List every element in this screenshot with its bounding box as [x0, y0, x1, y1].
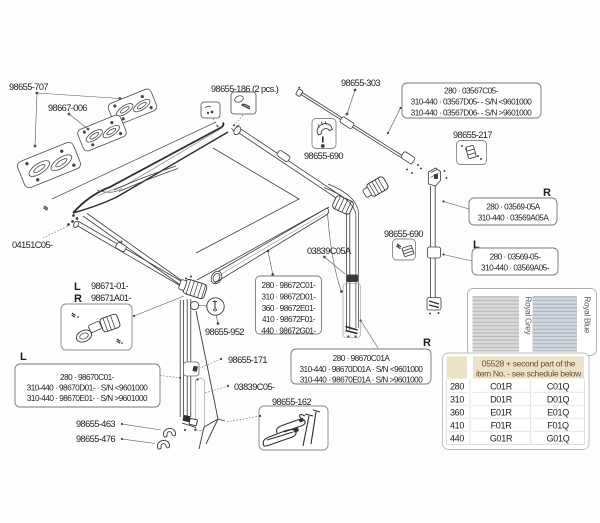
svg-text:310-440 · 03567D05- - S/N <960: 310-440 · 03567D05- - S/N <9601000 [411, 98, 533, 107]
svg-text:310-440 · 98670D01A · S/N <960: 310-440 · 98670D01A · S/N <9601000 [300, 365, 424, 374]
svg-text:280 · 03569-05A: 280 · 03569-05A [486, 203, 541, 212]
svg-text:G01R: G01R [490, 434, 513, 444]
svg-text:item No. - see schedule below: item No. - see schedule below [476, 369, 582, 379]
svg-text:Royal Blue: Royal Blue [583, 297, 592, 334]
svg-text:98655-476: 98655-476 [76, 434, 115, 444]
svg-text:F01R: F01R [491, 421, 513, 431]
svg-text:280 · 03567C05-: 280 · 03567C05- [444, 87, 499, 96]
svg-text:98655-690: 98655-690 [304, 151, 343, 161]
svg-text:98655-162: 98655-162 [272, 397, 311, 407]
svg-text:310-440 · 03569A05A: 310-440 · 03569A05A [478, 214, 550, 223]
svg-text:280 · 03569-05-: 280 · 03569-05- [490, 253, 542, 262]
svg-text:310-440 · 98670E01A · S/N >960: 310-440 · 98670E01A · S/N >9601000 [300, 376, 423, 385]
svg-text:310-440 · 03567D06- - S/N >960: 310-440 · 03567D06- - S/N >9601000 [411, 109, 533, 118]
svg-text:98655-217: 98655-217 [453, 130, 492, 140]
svg-text:310: 310 [450, 395, 464, 405]
svg-text:310 · 98672D01-: 310 · 98672D01- [262, 292, 317, 301]
svg-text:310-440 · 98670E01- · S/N >960: 310-440 · 98670E01- · S/N >9601000 [27, 394, 148, 403]
svg-text:D01Q: D01Q [547, 395, 570, 405]
svg-text:98655-690: 98655-690 [384, 229, 423, 239]
svg-text:G01Q: G01Q [547, 434, 570, 444]
svg-text:98655-463: 98655-463 [76, 419, 115, 429]
svg-text:410 · 98672F01-: 410 · 98672F01- [262, 315, 316, 324]
svg-text:360: 360 [450, 408, 464, 418]
svg-text:98655-303: 98655-303 [341, 78, 380, 88]
svg-text:98655-707: 98655-707 [9, 82, 48, 92]
svg-text:98655-171: 98655-171 [228, 355, 267, 365]
svg-text:410: 410 [450, 421, 464, 431]
svg-text:Royal Grey: Royal Grey [524, 297, 533, 336]
svg-text:280 · 98672C01-: 280 · 98672C01- [262, 281, 317, 290]
svg-text:98667-006: 98667-006 [48, 103, 87, 113]
svg-text:L: L [20, 351, 27, 363]
svg-text:04151C05-: 04151C05- [12, 240, 53, 250]
svg-text:98671-01-: 98671-01- [91, 281, 128, 291]
svg-text:440: 440 [450, 434, 464, 444]
svg-text:R: R [423, 337, 431, 349]
svg-text:C01R: C01R [490, 382, 513, 392]
svg-text:280 · 98670C01A: 280 · 98670C01A [333, 354, 391, 363]
svg-text:R: R [543, 187, 551, 199]
svg-text:R: R [74, 293, 82, 305]
svg-text:98655-952: 98655-952 [205, 327, 244, 337]
svg-text:03839C05A: 03839C05A [307, 246, 352, 256]
svg-text:L: L [74, 281, 81, 293]
svg-text:05528 + second part of the: 05528 + second part of the [482, 359, 576, 369]
svg-text:360 · 98672E01-: 360 · 98672E01- [262, 304, 316, 313]
svg-text:310-440 · 98670D01- · S/N <960: 310-440 · 98670D01- · S/N <9601000 [27, 384, 149, 393]
svg-text:280 · 98670C01-: 280 · 98670C01- [60, 373, 115, 382]
svg-text:D01R: D01R [490, 395, 513, 405]
svg-text:E01R: E01R [490, 408, 512, 418]
svg-text:C01Q: C01Q [547, 382, 570, 392]
svg-text:98671A01-: 98671A01- [91, 293, 131, 303]
svg-text:F01Q: F01Q [547, 421, 569, 431]
svg-text:E01Q: E01Q [547, 408, 569, 418]
svg-text:440 · 98672G01-: 440 · 98672G01- [261, 327, 316, 336]
svg-text:310-440 · 03569A05-: 310-440 · 03569A05- [481, 264, 550, 273]
svg-text:03839C05-: 03839C05- [234, 382, 275, 392]
svg-text:280: 280 [450, 382, 464, 392]
